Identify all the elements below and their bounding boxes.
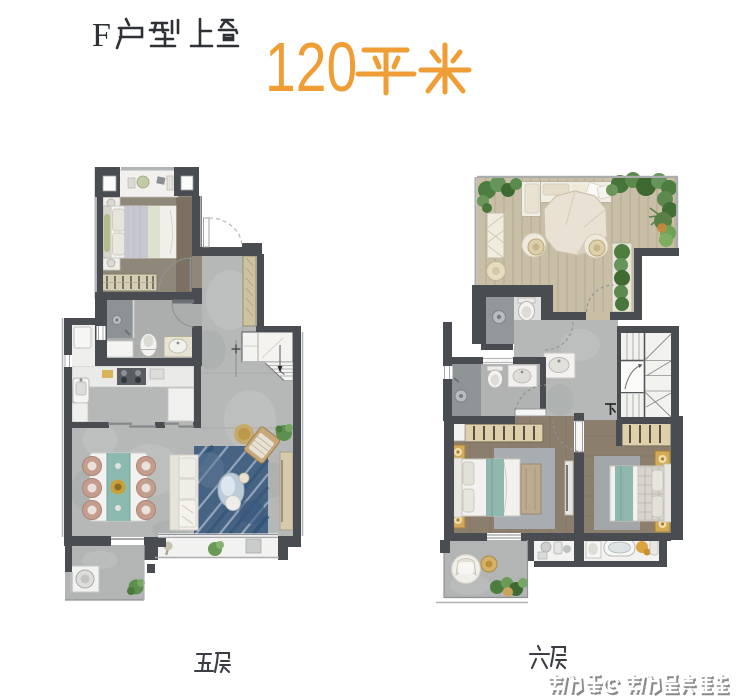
svg-text:120: 120 (265, 29, 357, 107)
svg-text:F: F (92, 17, 111, 54)
